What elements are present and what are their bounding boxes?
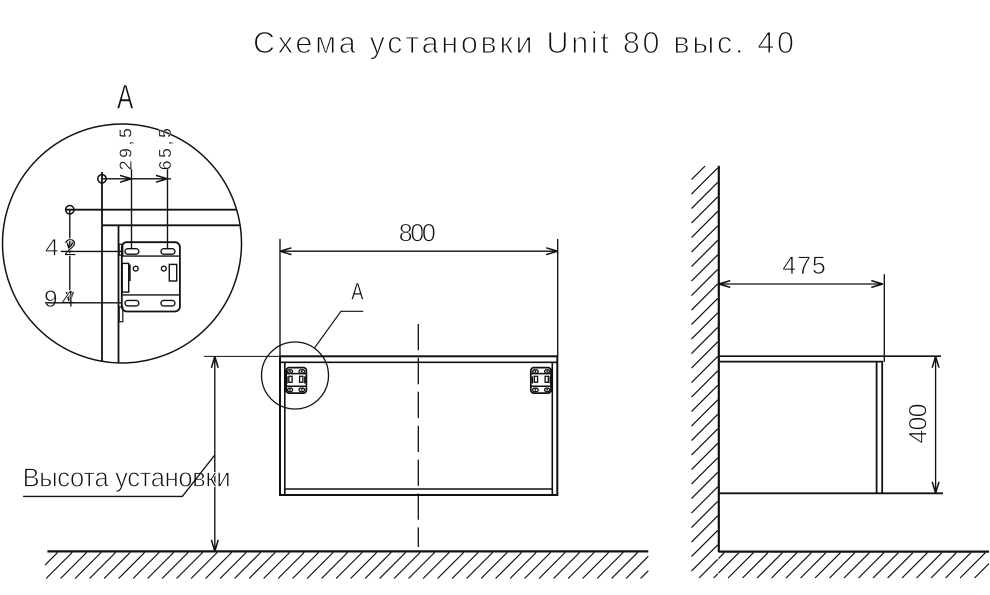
svg-text:Схема установки Unit 80 выс. 4: Схема установки Unit 80 выс. 40: [253, 26, 794, 60]
svg-text:800: 800: [399, 219, 436, 247]
svg-text:400: 400: [905, 404, 933, 444]
svg-text:A: A: [117, 78, 134, 116]
svg-text:475: 475: [782, 252, 826, 280]
svg-text:29,5: 29,5: [116, 128, 136, 170]
svg-text:A: A: [351, 277, 364, 305]
svg-text:Высота установки: Высота установки: [23, 464, 231, 492]
svg-text:65,5: 65,5: [155, 128, 175, 170]
